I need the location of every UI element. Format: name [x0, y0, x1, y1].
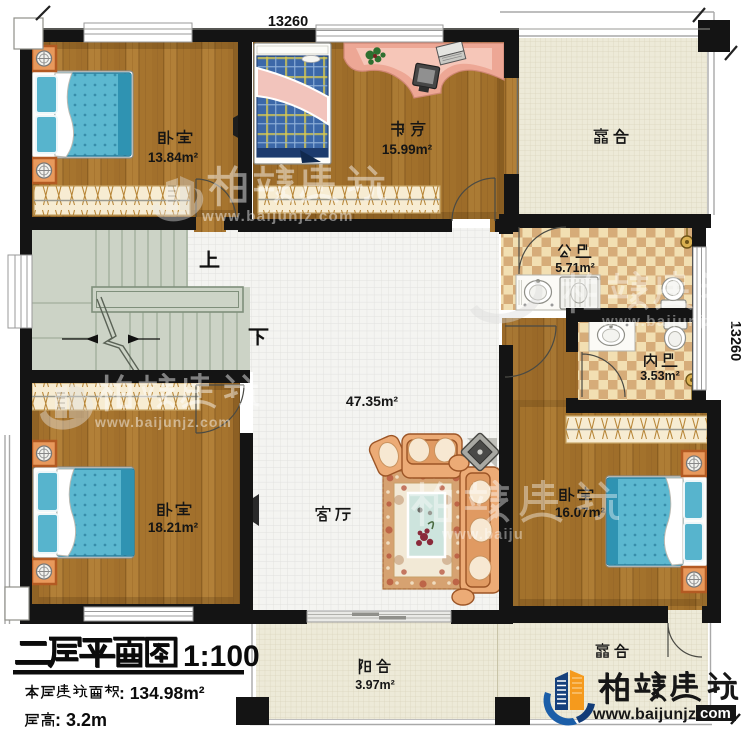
- svg-text:www.baijunjz.: www.baijunjz.: [592, 706, 701, 723]
- svg-text:13260: 13260: [268, 14, 308, 30]
- svg-text:15.99m²: 15.99m²: [382, 142, 433, 157]
- svg-text:www.baijunjz.co: www.baijunjz.co: [601, 313, 739, 330]
- svg-text:: 134.98m²: : 134.98m²: [119, 683, 205, 703]
- svg-text:47.35m²: 47.35m²: [346, 393, 398, 409]
- svg-text:13.84m²: 13.84m²: [148, 150, 199, 165]
- svg-text:com: com: [700, 705, 731, 722]
- svg-text:: 3.2m: : 3.2m: [55, 710, 107, 730]
- svg-text:www.baijunjz.com: www.baijunjz.com: [94, 414, 232, 430]
- svg-text:www.baiju: www.baiju: [441, 527, 524, 543]
- svg-text:1:100: 1:100: [183, 640, 260, 673]
- svg-text:3.53m²: 3.53m²: [640, 369, 680, 383]
- svg-text:18.21m²: 18.21m²: [148, 520, 199, 535]
- svg-text:www.baijunjz.com: www.baijunjz.com: [201, 208, 354, 225]
- svg-text:3.97m²: 3.97m²: [355, 678, 395, 692]
